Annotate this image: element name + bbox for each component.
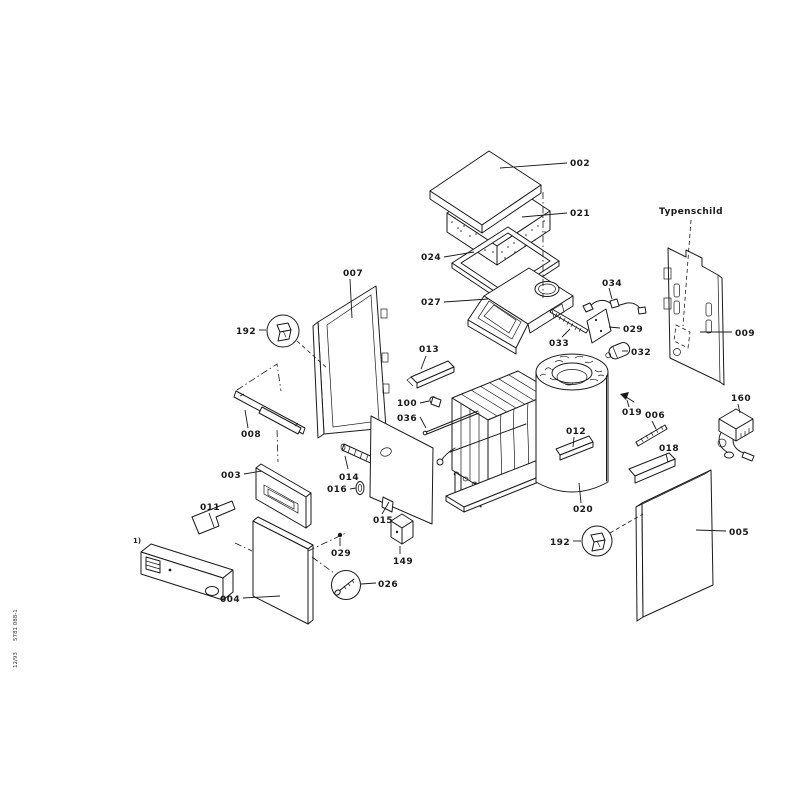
control-knob xyxy=(206,587,219,596)
sensor-032 xyxy=(603,341,631,362)
fastener-detail-192-left xyxy=(267,315,299,347)
label-footnote: 1) xyxy=(133,537,141,545)
label-021: 021 xyxy=(570,209,590,219)
strip-018 xyxy=(629,453,675,483)
label-036: 036 xyxy=(397,414,417,424)
label-026: 026 xyxy=(378,580,398,590)
label-012: 012 xyxy=(566,427,586,437)
label-149: 149 xyxy=(393,557,413,567)
label-015: 015 xyxy=(373,516,393,526)
cable-034 xyxy=(583,299,646,314)
side-panel-005 xyxy=(636,470,713,621)
bracket-013 xyxy=(407,361,454,388)
label-003: 003 xyxy=(221,471,241,481)
fitting-100 xyxy=(430,397,441,407)
doc-number: 5781 088-1 xyxy=(13,609,19,641)
grommet-016 xyxy=(356,482,364,495)
doc-number-block: 12/93 5781 088-1 xyxy=(13,609,19,668)
label-192b: 192 xyxy=(550,538,570,548)
exploded-parts-diagram: 002 021 024 027 033 034 029 032 009 Type… xyxy=(0,0,800,800)
label-typenschild: Typenschild xyxy=(659,207,723,217)
label-029a: 029 xyxy=(623,325,643,335)
label-008: 008 xyxy=(241,430,261,440)
label-007: 007 xyxy=(343,269,363,279)
side-panel-007 xyxy=(313,286,389,438)
strip-008 xyxy=(234,391,305,434)
ignition-module-160 xyxy=(718,409,754,461)
front-top-panel-003 xyxy=(256,464,311,528)
doc-date: 12/93 xyxy=(13,652,19,668)
label-005: 005 xyxy=(729,528,749,538)
label-192a: 192 xyxy=(236,327,256,337)
label-034: 034 xyxy=(602,279,622,289)
label-024: 024 xyxy=(421,253,441,263)
label-002: 002 xyxy=(570,159,590,169)
insulation-cylinder-020 xyxy=(536,354,608,492)
label-160: 160 xyxy=(731,394,751,404)
front-door-004 xyxy=(253,517,313,624)
label-027: 027 xyxy=(421,298,441,308)
screw-detail-026 xyxy=(332,571,361,600)
label-009: 009 xyxy=(735,329,755,339)
fastener-detail-192-right xyxy=(582,526,612,556)
label-011: 011 xyxy=(200,503,220,513)
label-014: 014 xyxy=(339,473,359,483)
label-020: 020 xyxy=(573,505,593,515)
label-013: 013 xyxy=(419,345,439,355)
label-016: 016 xyxy=(327,485,347,495)
label-029b: 029 xyxy=(331,549,351,559)
label-033: 033 xyxy=(549,339,569,349)
label-018: 018 xyxy=(659,444,679,454)
bracket-plate-029 xyxy=(587,309,611,343)
label-004: 004 xyxy=(220,595,240,605)
label-006: 006 xyxy=(645,411,665,421)
label-032: 032 xyxy=(631,348,651,358)
label-100: 100 xyxy=(397,399,417,409)
control-unit xyxy=(141,544,233,600)
label-019: 019 xyxy=(622,408,642,418)
junction-box-149 xyxy=(391,514,413,544)
rod-006 xyxy=(636,425,667,446)
rear-panel-009 xyxy=(664,248,724,385)
